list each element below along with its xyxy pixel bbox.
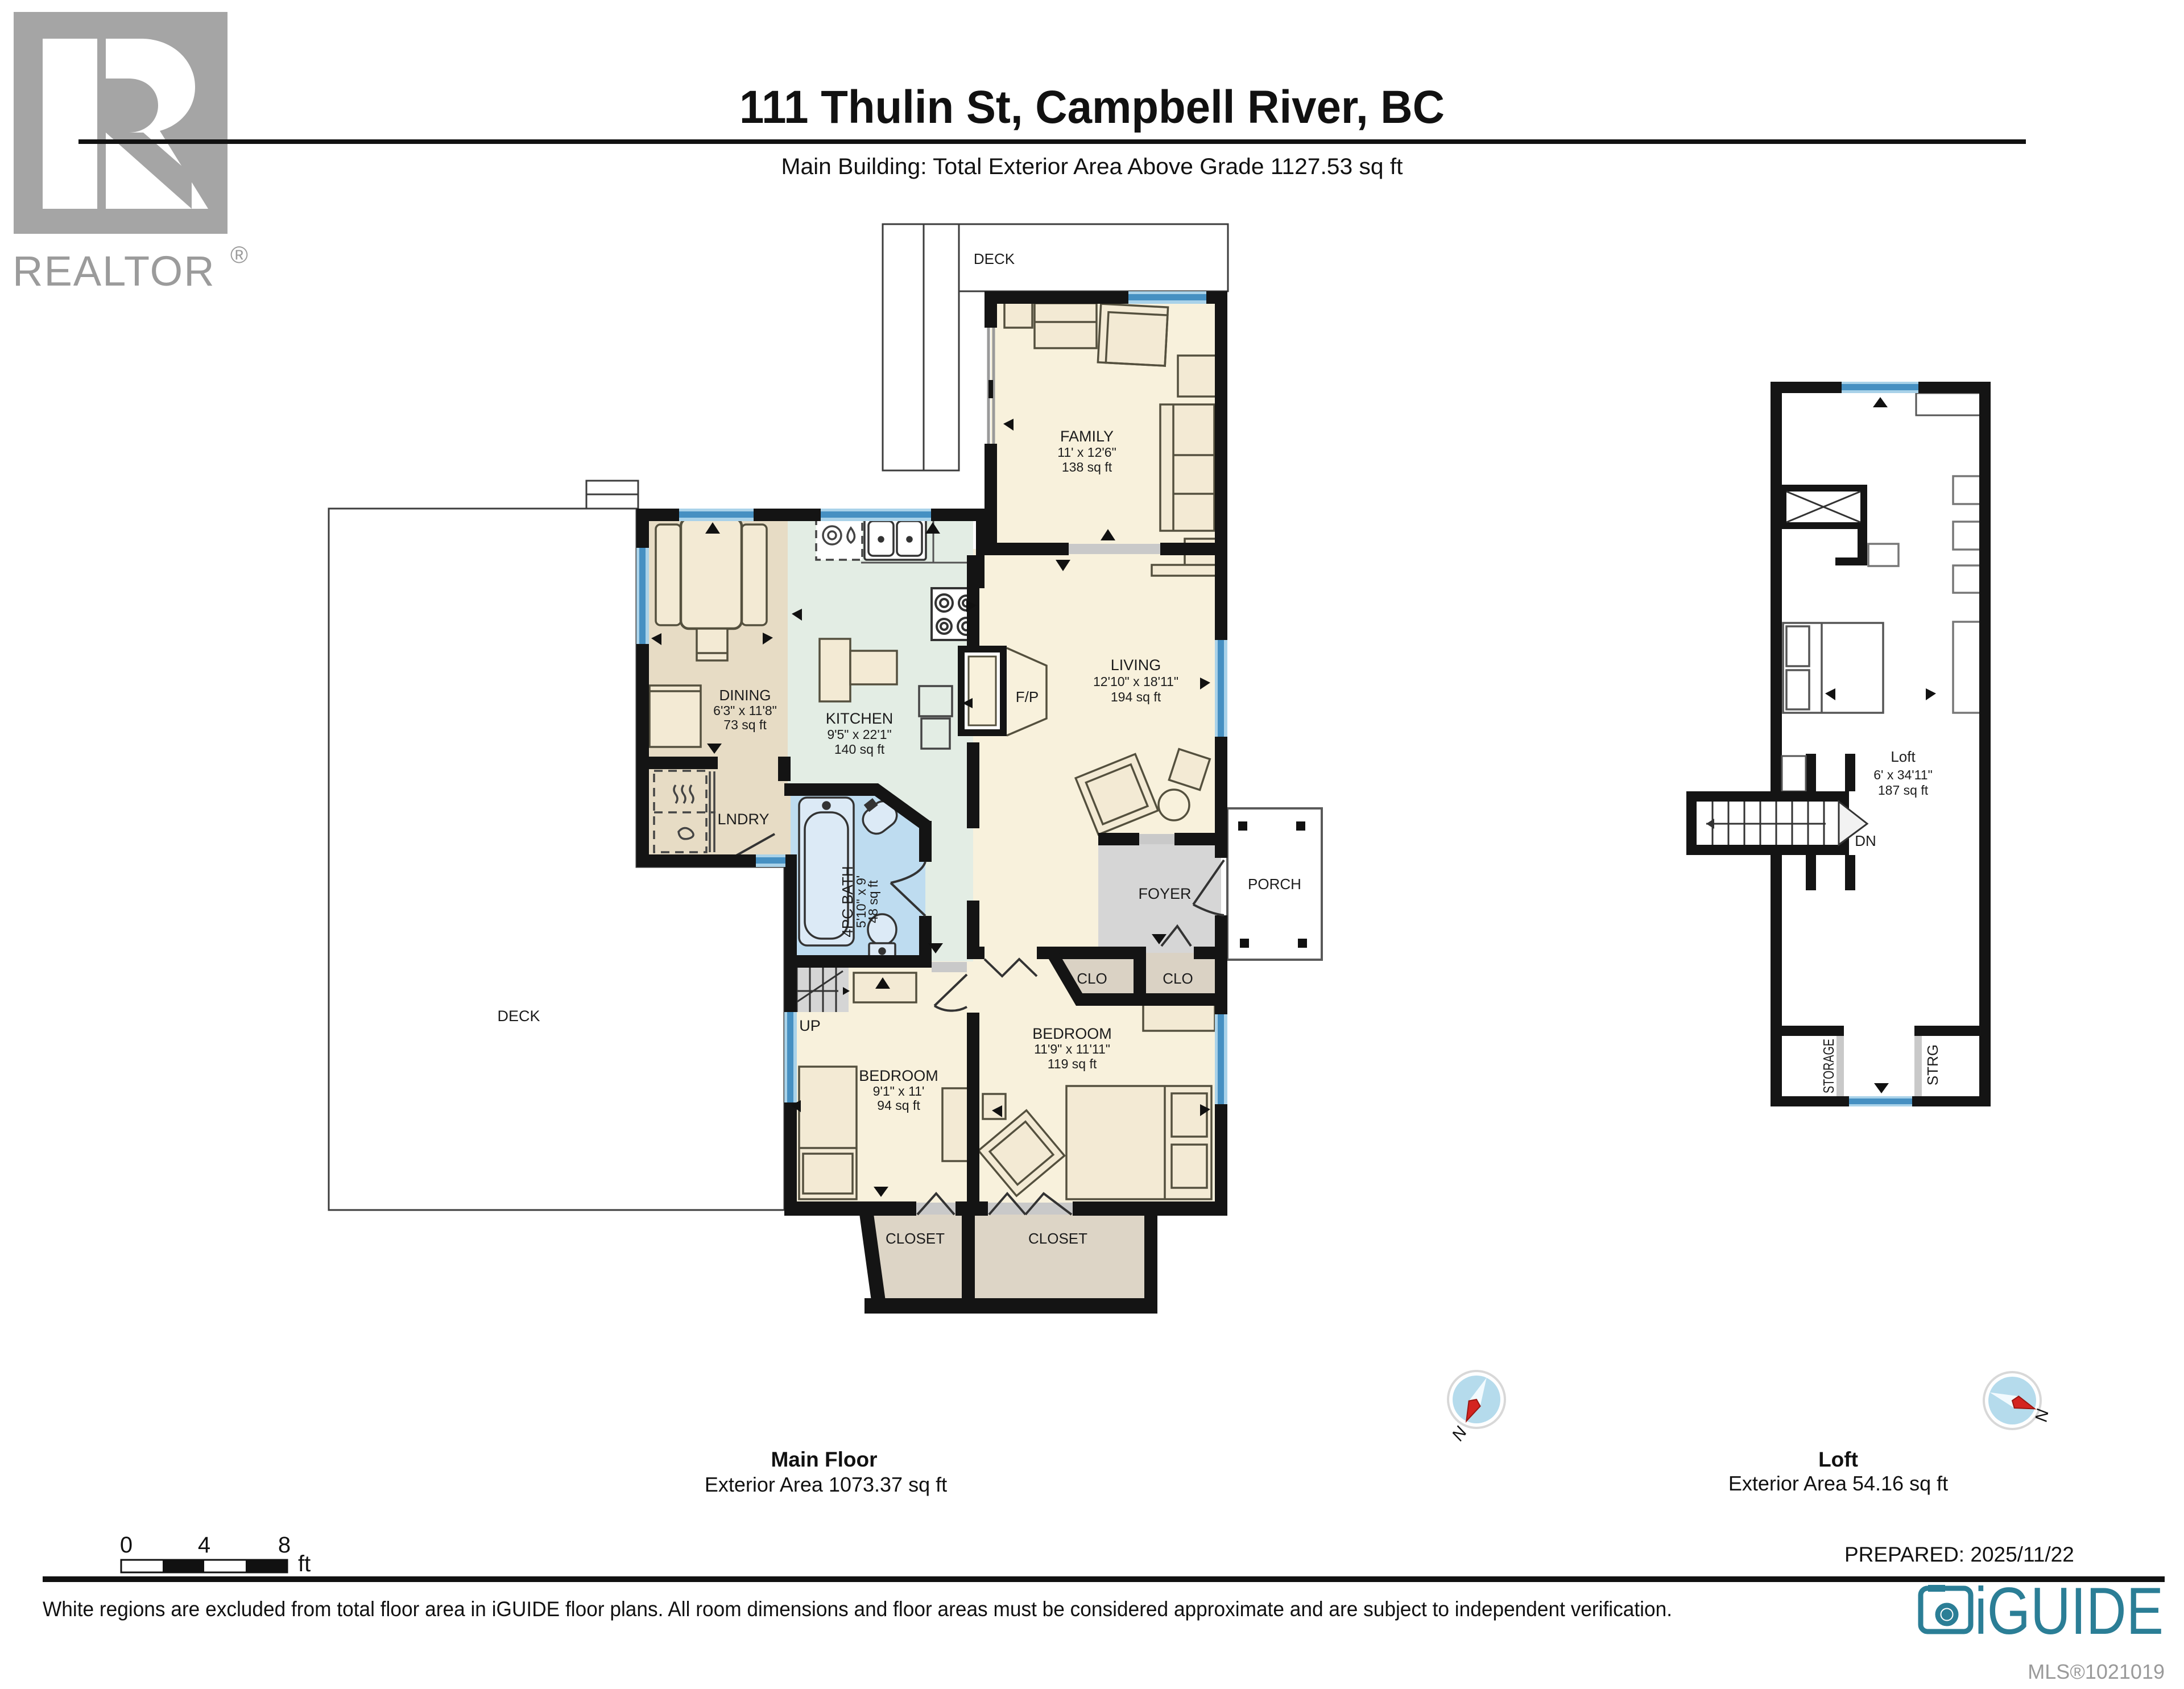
svg-text:0: 0 <box>120 1533 133 1558</box>
svg-text:187 sq ft: 187 sq ft <box>1878 783 1929 798</box>
svg-text:Main Floor: Main Floor <box>771 1448 877 1471</box>
svg-text:PREPARED: 2025/11/22: PREPARED: 2025/11/22 <box>1844 1543 2074 1566</box>
svg-text:11'9" x 11'11": 11'9" x 11'11" <box>1034 1042 1110 1056</box>
svg-text:119 sq ft: 119 sq ft <box>1048 1056 1097 1071</box>
svg-text:DECK: DECK <box>497 1007 540 1025</box>
svg-text:Exterior Area 54.16 sq ft: Exterior Area 54.16 sq ft <box>1728 1472 1948 1495</box>
svg-text:140 sq ft: 140 sq ft <box>834 742 885 757</box>
svg-text:STRG: STRG <box>1924 1044 1941 1085</box>
svg-text:194 sq ft: 194 sq ft <box>1111 689 1161 704</box>
svg-text:48 sq ft: 48 sq ft <box>866 880 880 923</box>
svg-text:CLOSET: CLOSET <box>886 1230 945 1247</box>
svg-text:®: ® <box>230 241 248 268</box>
svg-text:F/P: F/P <box>1016 688 1039 705</box>
svg-text:4: 4 <box>198 1533 210 1558</box>
svg-text:Main Building: Total Exterior: Main Building: Total Exterior Area Above… <box>781 154 1403 179</box>
svg-text:BEDROOM: BEDROOM <box>859 1067 938 1084</box>
svg-text:9'5" x 22'1": 9'5" x 22'1" <box>827 727 891 742</box>
svg-text:Loft: Loft <box>1818 1448 1858 1471</box>
svg-text:8: 8 <box>278 1533 291 1558</box>
svg-text:MLS®1021019: MLS®1021019 <box>2028 1660 2165 1683</box>
svg-text:Exterior Area 1073.37 sq ft: Exterior Area 1073.37 sq ft <box>705 1473 947 1496</box>
svg-text:6' x 34'11": 6' x 34'11" <box>1873 767 1932 782</box>
svg-text:UP: UP <box>799 1017 821 1034</box>
svg-text:Loft: Loft <box>1891 748 1916 765</box>
svg-text:FAMILY: FAMILY <box>1060 428 1114 445</box>
svg-text:CLO: CLO <box>1163 970 1193 987</box>
svg-text:White regions are excluded fro: White regions are excluded from total fl… <box>43 1597 1672 1621</box>
svg-text:94 sq ft: 94 sq ft <box>877 1098 920 1113</box>
svg-text:11' x 12'6": 11' x 12'6" <box>1057 445 1116 460</box>
svg-text:PORCH: PORCH <box>1248 876 1301 893</box>
svg-text:DINING: DINING <box>719 687 771 704</box>
svg-text:iGUIDE: iGUIDE <box>1975 1574 2164 1648</box>
svg-text:BEDROOM: BEDROOM <box>1032 1025 1112 1042</box>
svg-text:LNDRY: LNDRY <box>717 811 769 828</box>
svg-text:DN: DN <box>1855 832 1876 849</box>
svg-text:12'10" x 18'11": 12'10" x 18'11" <box>1093 674 1178 689</box>
svg-text:CLO: CLO <box>1077 970 1107 987</box>
svg-text:FOYER: FOYER <box>1138 885 1191 902</box>
svg-text:CLOSET: CLOSET <box>1028 1230 1087 1247</box>
svg-text:REALTOR: REALTOR <box>13 247 216 295</box>
svg-text:111 Thulin St, Campbell River,: 111 Thulin St, Campbell River, BC <box>739 81 1445 133</box>
svg-text:LIVING: LIVING <box>1111 656 1161 674</box>
svg-text:STORAGE: STORAGE <box>1820 1039 1837 1093</box>
svg-text:6'3" x 11'8": 6'3" x 11'8" <box>713 703 777 718</box>
svg-text:73 sq ft: 73 sq ft <box>723 717 767 732</box>
svg-text:KITCHEN: KITCHEN <box>826 710 894 727</box>
svg-text:138 sq ft: 138 sq ft <box>1062 460 1112 474</box>
svg-text:9'1" x 11': 9'1" x 11' <box>873 1084 925 1099</box>
svg-text:DECK: DECK <box>974 250 1015 267</box>
svg-text:ft: ft <box>298 1551 311 1576</box>
